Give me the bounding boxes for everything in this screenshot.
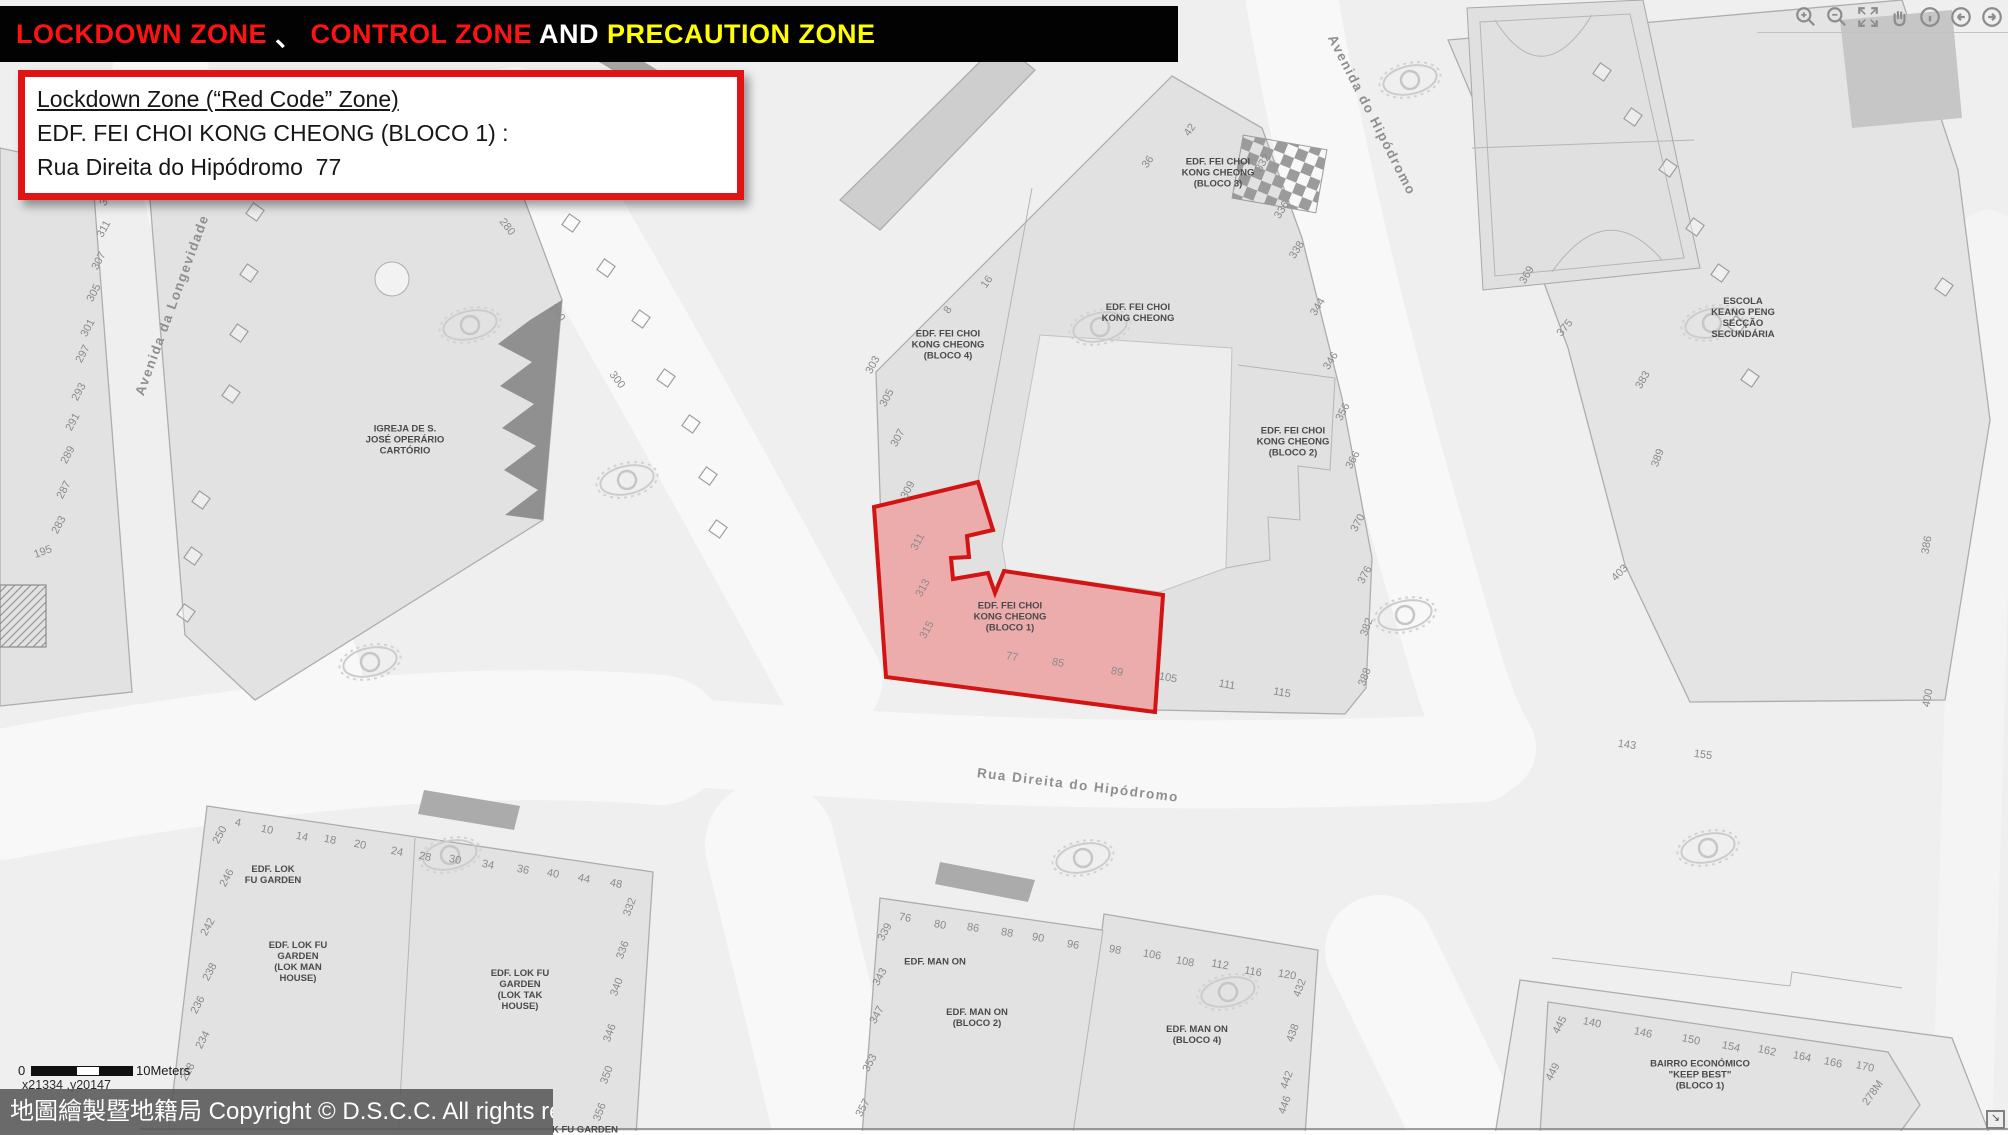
title-segment: AND xyxy=(532,19,607,50)
toolbar-underline xyxy=(1757,32,2008,33)
zoom-in-icon[interactable] xyxy=(1794,5,1818,29)
scale-zero-label: 0 xyxy=(18,1063,25,1078)
dscc-logo-watermark xyxy=(1376,57,1444,103)
dscc-logo-watermark xyxy=(1049,835,1117,881)
title-segment: PRECAUTION ZONE xyxy=(607,19,876,50)
scale-bar xyxy=(31,1066,133,1076)
pan-hand-icon[interactable] xyxy=(1887,5,1911,29)
lockdown-info-box: Lockdown Zone (“Red Code” Zone) EDF. FEI… xyxy=(18,70,744,200)
scale-segment xyxy=(32,1067,77,1075)
overview-map-toggle-button[interactable]: ↘ xyxy=(1986,1110,2005,1129)
copyright-bar: 地圖繪製暨地籍局 Copyright © D.S.C.C. All rights… xyxy=(0,1089,553,1135)
title-segment: CONTROL ZONE xyxy=(311,19,533,50)
hatch-block xyxy=(0,585,46,647)
info-address: Rua Direita do Hipódromo 77 xyxy=(37,150,725,184)
full-extent-icon[interactable] xyxy=(1856,5,1880,29)
zoom-out-icon[interactable] xyxy=(1825,5,1849,29)
dscc-logo-watermark xyxy=(593,457,661,503)
dscc-logo-watermark xyxy=(1674,825,1742,871)
title-segment: LOCKDOWN ZONE xyxy=(16,19,275,50)
block-church xyxy=(148,113,562,700)
map-application: 3153113073053012972932912892872831952802… xyxy=(0,0,2008,1135)
scale-segment xyxy=(99,1067,132,1075)
map-toolbar xyxy=(1794,5,2004,29)
scale-segment xyxy=(77,1067,99,1075)
title-bar: LOCKDOWN ZONE 、 CONTROL ZONE AND PRECAUT… xyxy=(0,6,1178,62)
next-extent-icon[interactable] xyxy=(1980,5,2004,29)
previous-extent-icon[interactable] xyxy=(1949,5,1973,29)
block-nw-strip xyxy=(840,42,1035,230)
block-lok-fu xyxy=(168,806,653,1135)
info-zone-title: Lockdown Zone (“Red Code” Zone) xyxy=(37,82,725,116)
identify-icon[interactable] xyxy=(1918,5,1942,29)
info-building: EDF. FEI CHOI KONG CHEONG (BLOCO 1) : xyxy=(37,116,725,150)
title-segment: 、 xyxy=(275,15,311,54)
scale-distance-label: 10Meters xyxy=(136,1063,190,1078)
